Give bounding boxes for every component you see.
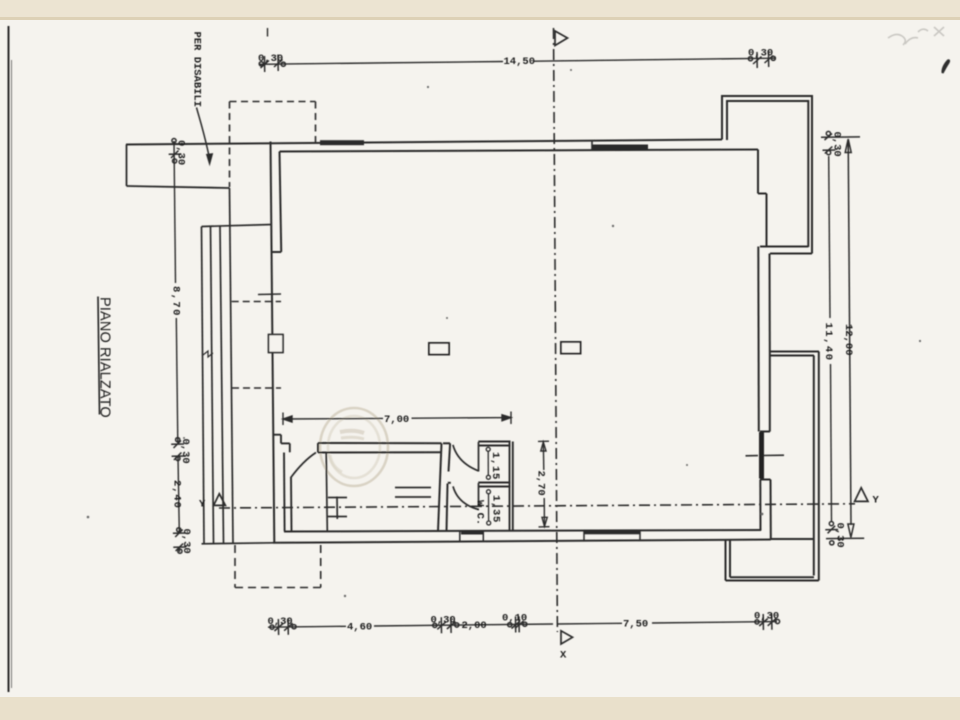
svg-text:0,30: 0,30 xyxy=(831,132,843,157)
svg-text:0,30: 0,30 xyxy=(258,53,283,65)
svg-text:1,15: 1,15 xyxy=(489,452,501,480)
svg-text:0,30: 0,30 xyxy=(834,523,846,548)
svg-text:8,70: 8,70 xyxy=(170,286,182,317)
svg-text:14,50: 14,50 xyxy=(504,56,536,68)
svg-text:0,30: 0,30 xyxy=(431,615,456,627)
svg-text:Y: Y xyxy=(199,499,206,511)
svg-text:X: X xyxy=(560,650,567,662)
svg-text:1,35: 1,35 xyxy=(490,495,502,523)
svg-text:2,00: 2,00 xyxy=(462,620,487,632)
svg-text:2,40: 2,40 xyxy=(171,480,183,509)
svg-text:11,40: 11,40 xyxy=(822,323,834,362)
svg-text:Y: Y xyxy=(873,495,880,507)
svg-text:W.C.: W.C. xyxy=(474,500,486,525)
svg-text:PER DISABILI: PER DISABILI xyxy=(191,32,203,108)
svg-text:2,70: 2,70 xyxy=(535,471,547,496)
svg-text:7,00: 7,00 xyxy=(384,414,409,426)
svg-text:12,00: 12,00 xyxy=(842,324,854,356)
svg-text:7,50: 7,50 xyxy=(623,619,648,631)
svg-text:0,30: 0,30 xyxy=(748,48,773,60)
svg-text:4,60: 4,60 xyxy=(347,622,372,634)
svg-text:0,30: 0,30 xyxy=(175,140,187,165)
svg-text:0,30: 0,30 xyxy=(180,529,192,554)
svg-text:0,30: 0,30 xyxy=(268,616,293,628)
svg-text:0,10: 0,10 xyxy=(502,613,527,625)
svg-text:0,30: 0,30 xyxy=(179,439,191,464)
svg-text:0,30: 0,30 xyxy=(754,611,779,623)
